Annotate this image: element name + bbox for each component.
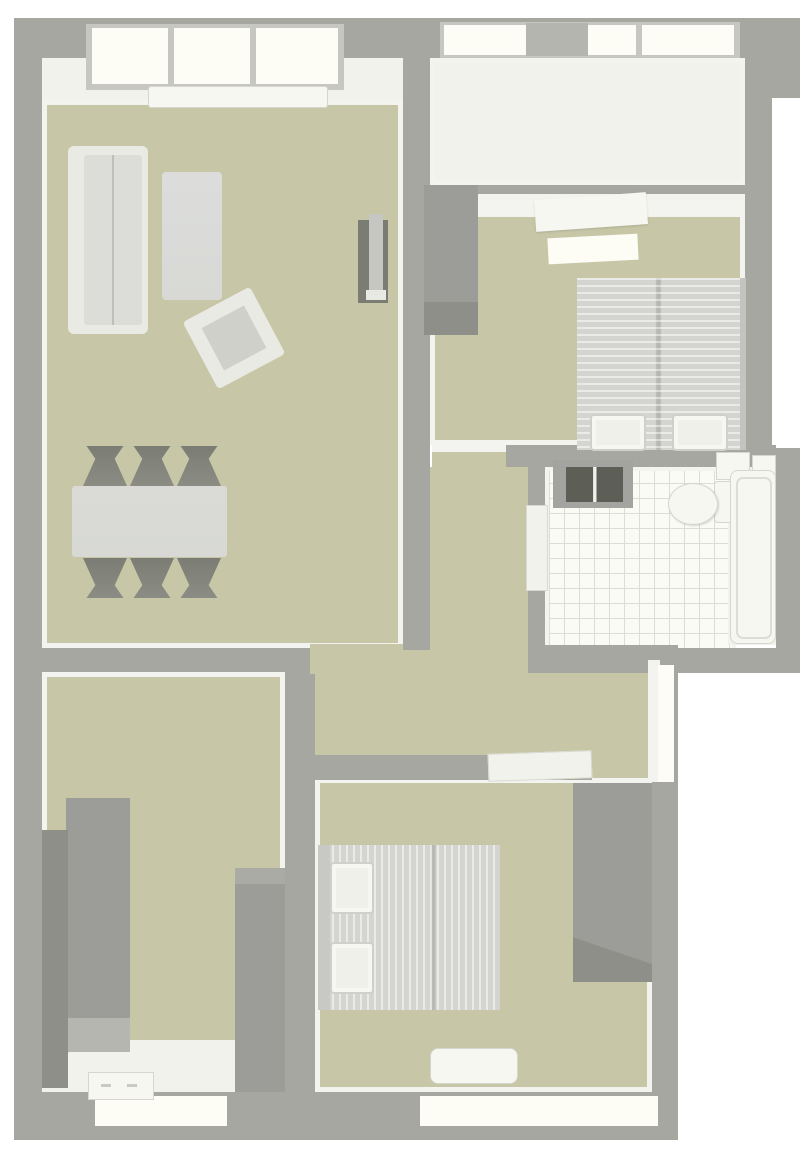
tv-screen bbox=[369, 214, 383, 290]
bedroom2-headboard bbox=[318, 845, 330, 1010]
wall-living-south bbox=[42, 648, 310, 672]
bedroom2-pillow-top bbox=[330, 862, 374, 914]
bedroom1-pillow-left bbox=[590, 414, 646, 451]
bay-window-frame bbox=[86, 24, 344, 90]
balcony-floor bbox=[430, 58, 745, 185]
bathroom-vanity bbox=[553, 460, 633, 508]
floor-plan-canvas bbox=[0, 0, 800, 1162]
bathroom-door-leaf bbox=[526, 505, 548, 591]
bedroom2-window-bench bbox=[430, 1048, 518, 1084]
wall-right-bathroom bbox=[776, 448, 800, 673]
wall-right-upper bbox=[745, 58, 772, 448]
coffee-table bbox=[162, 172, 222, 300]
wall-bedroom3-east bbox=[285, 660, 315, 1092]
wall-corner-top-right bbox=[745, 18, 800, 98]
hall-east-window-pane bbox=[658, 665, 674, 782]
bathtub bbox=[730, 470, 776, 644]
corridor-floor bbox=[430, 467, 528, 645]
vanity-basin bbox=[566, 467, 623, 502]
bay-window-pane-3 bbox=[256, 28, 338, 84]
dining-table bbox=[72, 486, 227, 557]
armchair-seat bbox=[202, 306, 267, 371]
bedroom3-wardrobe-left-b bbox=[42, 830, 68, 1088]
bedroom3-wardrobe-right-top-step bbox=[235, 868, 285, 884]
toilet-bowl bbox=[668, 483, 718, 525]
bay-window-pane-2 bbox=[174, 28, 250, 84]
living-hallway-passage bbox=[310, 644, 403, 674]
bedroom1-ceiling-light-2 bbox=[547, 234, 638, 265]
wall-divider-living bbox=[403, 58, 430, 650]
wall-left bbox=[14, 18, 42, 1140]
sofa bbox=[68, 146, 148, 334]
bedroom2-south-window bbox=[420, 1096, 658, 1126]
bedroom3-wardrobe-right bbox=[235, 868, 285, 1092]
balcony-window-frame bbox=[440, 22, 740, 58]
entry-small-cabinet bbox=[88, 1072, 154, 1100]
balcony-open-sash bbox=[526, 23, 588, 56]
cabinet-handle-2 bbox=[127, 1084, 137, 1087]
bay-window-pane-1 bbox=[92, 28, 168, 84]
bathtub-inner-rim bbox=[736, 477, 772, 639]
bedroom2-door-leaf bbox=[488, 750, 593, 782]
bedroom3-wardrobe-left-a bbox=[66, 798, 130, 1018]
tv-media-box bbox=[366, 290, 386, 300]
bedroom2-pillow-bottom bbox=[330, 942, 374, 994]
bedroom3-wardrobe-left-a-foot bbox=[66, 1018, 130, 1052]
living-window-sill bbox=[148, 86, 328, 108]
balcony-window-pane-3 bbox=[642, 25, 734, 55]
bedroom1-door-lintel bbox=[432, 445, 506, 452]
balcony-window-pane-1 bbox=[444, 25, 532, 55]
bedroom1-wardrobe-front-face bbox=[424, 302, 478, 335]
bedroom1-pillow-right bbox=[672, 414, 728, 451]
sofa-cushions bbox=[84, 155, 142, 325]
cabinet-handle-1 bbox=[101, 1084, 111, 1087]
bedroom3-south-window bbox=[95, 1096, 227, 1126]
